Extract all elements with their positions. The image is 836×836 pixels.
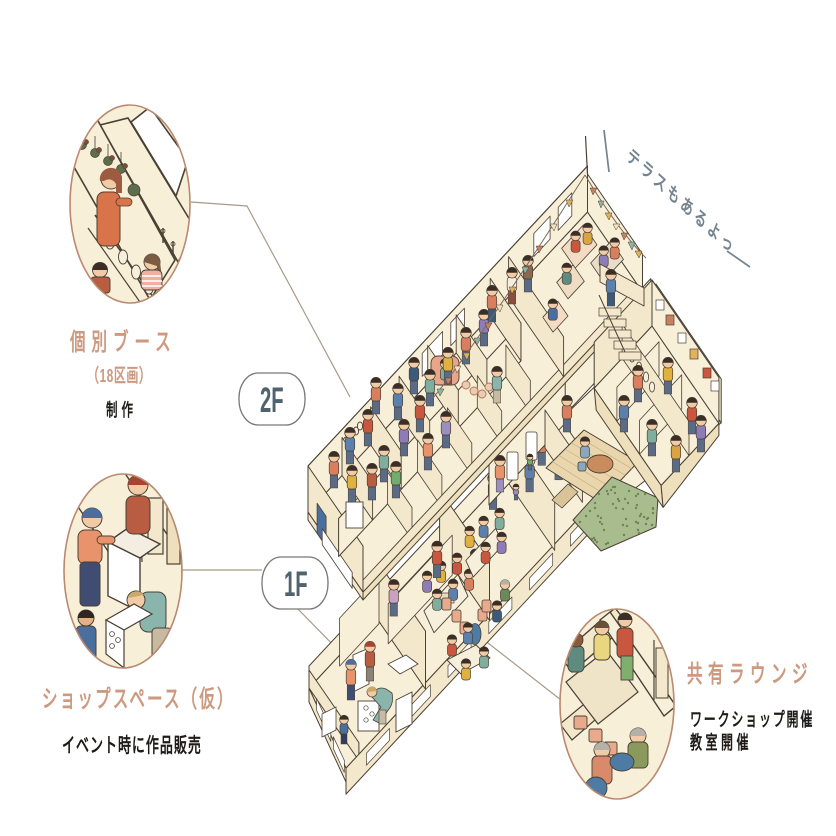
svg-text:共有ラウンジ: 共有ラウンジ bbox=[687, 659, 813, 688]
svg-text:イベント時に作品販売: イベント時に作品販売 bbox=[62, 733, 202, 757]
svg-text:2F: 2F bbox=[260, 381, 284, 420]
svg-text:1F: 1F bbox=[284, 565, 308, 604]
svg-text:個別ブース: 個別ブース bbox=[69, 327, 176, 356]
svg-text:テラスもあるよっ: テラスもあるよっ bbox=[624, 145, 738, 260]
svg-text:教室開催: 教室開催 bbox=[690, 731, 752, 754]
svg-text:制作: 制作 bbox=[106, 399, 137, 420]
svg-text:ショップスペース（仮）: ショップスペース（仮） bbox=[42, 686, 235, 713]
svg-text:（18区画）: （18区画） bbox=[87, 365, 151, 386]
svg-text:ワークショップ開催: ワークショップ開催 bbox=[690, 708, 814, 731]
